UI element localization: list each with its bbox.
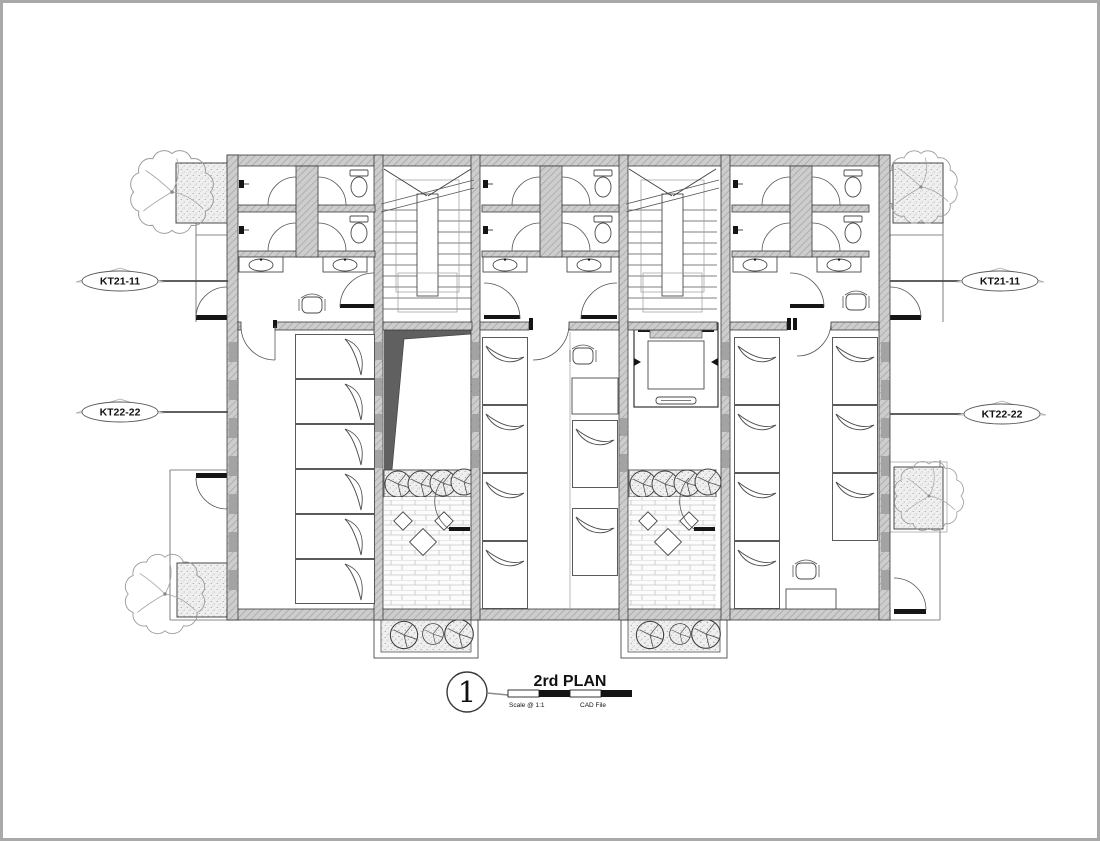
- scale-bar: [508, 690, 632, 697]
- image-frame: [2, 2, 1099, 840]
- brick-terrace: [629, 497, 716, 609]
- bed: [735, 542, 780, 609]
- balcony-door-leaf: [894, 609, 926, 614]
- elevator-car: [648, 341, 704, 389]
- bed: [296, 335, 375, 379]
- section-marker-label: KT21-11: [980, 276, 1020, 288]
- section-marker-label: KT22-22: [982, 409, 1023, 421]
- bed: [483, 338, 528, 405]
- balcony-door-leaf: [890, 315, 921, 320]
- terrace-door-leaf: [449, 527, 470, 531]
- corridor-chair-left: [299, 294, 325, 313]
- terrace-door-leaf: [694, 527, 715, 531]
- title-block: 1 2rd PLAN Scale @ 1:1 CAD File: [447, 672, 632, 712]
- courtyard-right: [621, 469, 727, 658]
- bed: [735, 338, 780, 405]
- tilted-plane: [392, 334, 471, 470]
- floor-plan-canvas: KT21-11 KT22-22 KT21-11 KT22-22 1 2rd PL…: [0, 0, 1100, 841]
- bed: [483, 542, 528, 609]
- bed: [833, 338, 878, 405]
- desk-chair: [570, 345, 596, 364]
- scale-text: Scale @ 1:1: [509, 702, 545, 709]
- bed: [296, 380, 375, 424]
- bed: [483, 406, 528, 473]
- section-marker-label: KT22-22: [100, 407, 141, 419]
- bed: [573, 421, 618, 488]
- bed: [735, 474, 780, 541]
- detail-number: 1: [458, 675, 476, 709]
- floor-plan-drawing: KT21-11 KT22-22 KT21-11 KT22-22 1 2rd PL…: [0, 0, 1100, 841]
- desk-chair: [793, 560, 819, 579]
- elevator-door: [650, 330, 702, 338]
- balcony-door-leaf: [196, 315, 227, 320]
- desk: [572, 378, 618, 414]
- cad-file-text: CAD File: [580, 702, 606, 709]
- bed: [735, 406, 780, 473]
- desk: [786, 589, 836, 609]
- bed: [833, 406, 878, 473]
- brick-terrace: [384, 497, 471, 609]
- elevator: [634, 323, 718, 407]
- bed: [296, 515, 375, 559]
- bed: [833, 474, 878, 541]
- corridor-chair-right: [843, 291, 869, 310]
- bed: [296, 425, 375, 469]
- balcony-door-leaf: [196, 473, 230, 478]
- bed: [296, 560, 375, 604]
- bed: [483, 474, 528, 541]
- bed: [296, 470, 375, 514]
- plan-title: 2rd PLAN: [534, 673, 607, 690]
- section-marker-label: KT21-11: [100, 276, 140, 288]
- bed: [573, 509, 618, 576]
